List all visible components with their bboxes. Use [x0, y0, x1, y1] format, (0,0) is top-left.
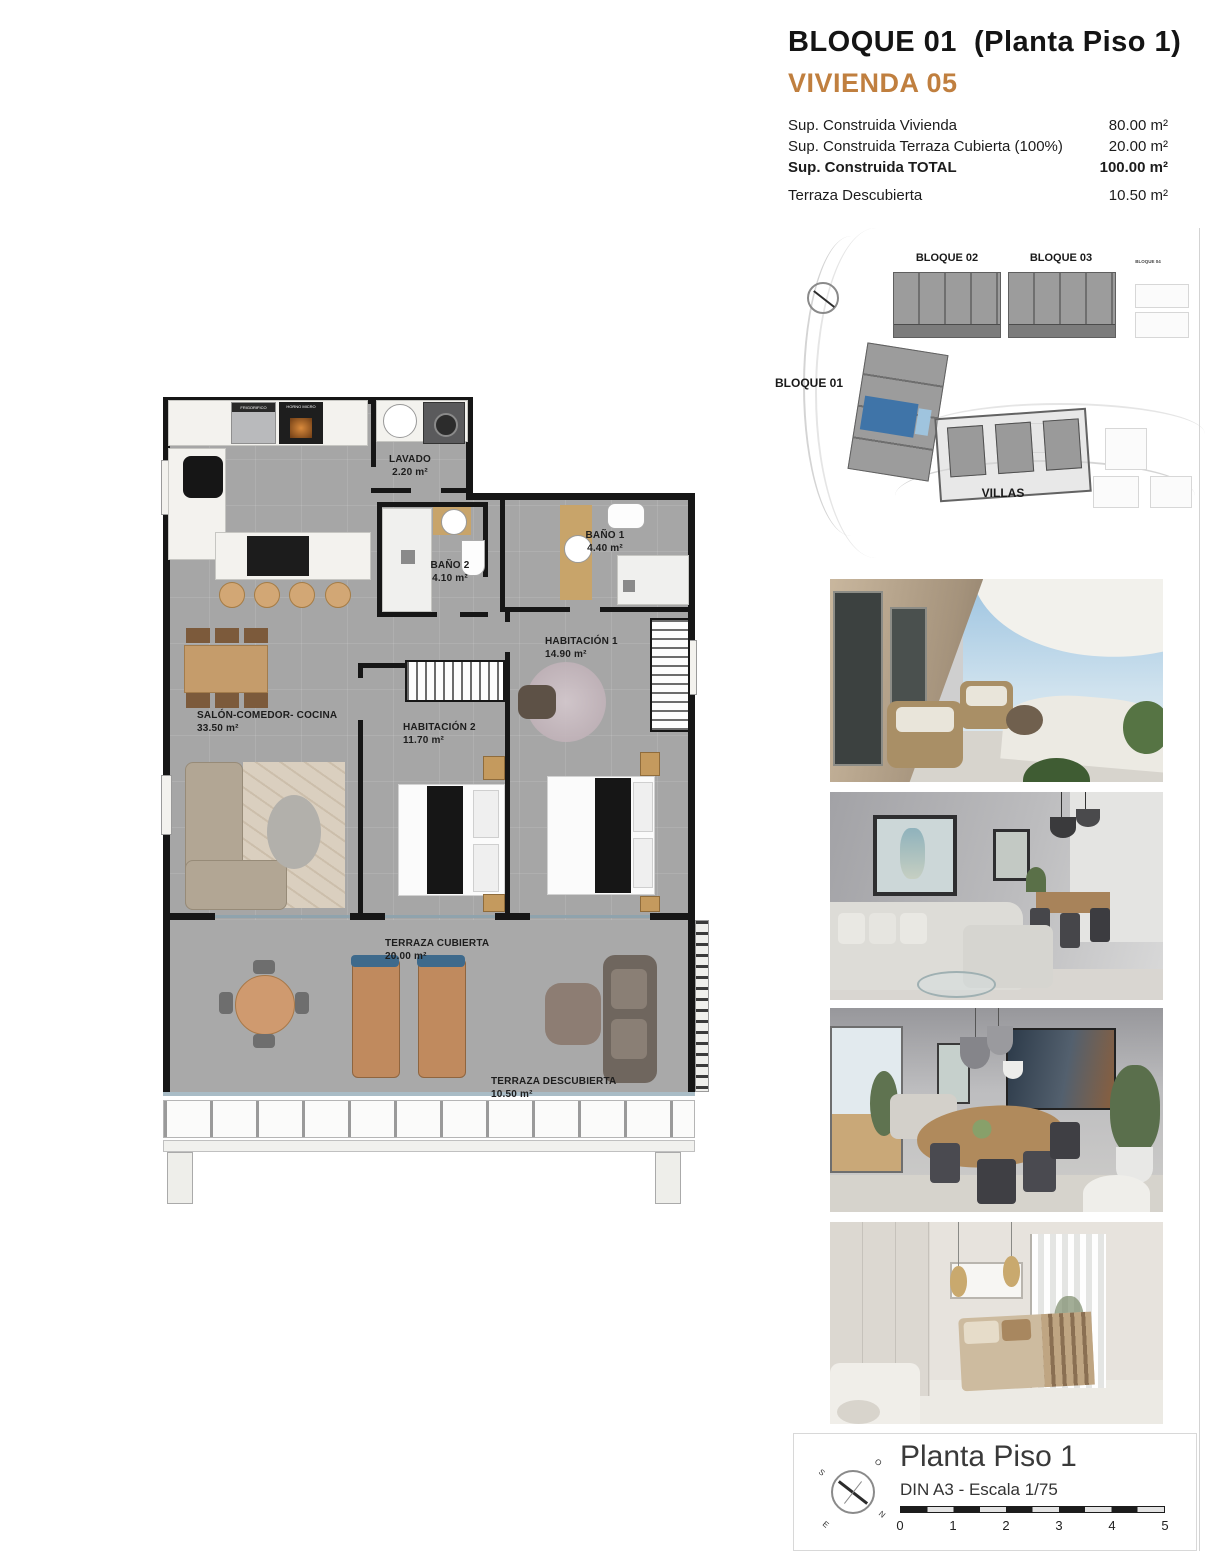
pendant-lamp	[960, 1037, 990, 1070]
cushion	[896, 707, 954, 731]
wall	[358, 663, 363, 678]
fridge-label: FRIGORIFICO	[232, 405, 275, 410]
villa	[995, 422, 1034, 474]
bed-pillow	[633, 782, 653, 832]
area-row: Sup. Construida Terraza Cubierta (100%) …	[788, 136, 1168, 157]
sun-lounger	[352, 958, 400, 1078]
wall	[377, 612, 437, 617]
label-bloque-01: BLOQUE 01	[775, 376, 845, 390]
neighbor-structure	[1093, 476, 1139, 508]
cooktop	[247, 536, 309, 576]
neighbor-structure	[1135, 284, 1189, 308]
villa	[947, 425, 986, 477]
wall	[371, 488, 411, 493]
room-area: 4.40 m²	[550, 543, 660, 556]
bar-stool	[219, 582, 245, 608]
room-label-salon: SALÓN-COMEDOR- COCINA 33.50 m²	[197, 710, 357, 735]
nightstand	[640, 896, 660, 912]
room-area: 10.50 m²	[491, 1089, 651, 1102]
room-label-bano1: BAÑO 1 4.40 m²	[550, 530, 660, 555]
coffee-table	[267, 795, 321, 869]
terrace-chair	[219, 992, 233, 1014]
fridge: FRIGORIFICO	[231, 402, 276, 444]
area-row-total: Sup. Construida TOTAL 100.00 m²	[788, 157, 1168, 178]
bed-blanket	[595, 778, 631, 893]
wall	[466, 493, 695, 500]
building-base	[894, 324, 1000, 337]
bar-stool	[254, 582, 280, 608]
glass-coffee-table	[917, 971, 997, 998]
area-label: Sup. Construida Terraza Cubierta (100%)	[788, 136, 1063, 157]
building-bloque-03	[1008, 272, 1116, 338]
dining-chair	[215, 693, 239, 708]
pendant-cord	[975, 1008, 976, 1041]
sofa-cushion	[838, 913, 865, 944]
room-area: 20.00 m²	[385, 951, 525, 964]
kitchen-sink-black	[183, 456, 223, 498]
header: BLOQUE 01 (Planta Piso 1) VIVIENDA 05 Su…	[788, 26, 1168, 206]
scale-tick: 2	[1000, 1518, 1012, 1533]
label-bloque-04: BLOQUE 04	[1123, 259, 1173, 264]
sink-bano2	[441, 509, 467, 535]
nightstand	[640, 752, 660, 776]
oven-micro: HORNO MICRO	[279, 402, 323, 444]
brochure-page: { "header": { "title": "BLOQUE 01 (Plant…	[0, 0, 1205, 1554]
bed	[958, 1311, 1095, 1391]
room-area: 4.10 m²	[400, 573, 500, 586]
wall	[441, 488, 473, 493]
room-name: TERRAZA DESCUBIERTA	[491, 1076, 651, 1089]
pendant-cord	[1085, 792, 1086, 811]
terrace-chair	[295, 992, 309, 1014]
area-value: 10.50 m²	[1109, 185, 1168, 206]
wall	[460, 612, 488, 617]
pendant-cord	[1061, 792, 1062, 819]
outdoor-pouf	[545, 983, 601, 1045]
area-row: Sup. Construida Vivienda 80.00 m²	[788, 115, 1168, 136]
pendant-cord	[958, 1222, 959, 1268]
bar-stool	[289, 582, 315, 608]
dining-chair	[977, 1159, 1017, 1204]
area-table: Sup. Construida Vivienda 80.00 m² Sup. C…	[788, 115, 1168, 206]
label-villas: VILLAS	[943, 486, 1063, 500]
scale-bar	[900, 1506, 1165, 1513]
tub-chair	[1083, 1175, 1150, 1212]
page-right-rule	[1199, 228, 1200, 1551]
room-name: SALÓN-COMEDOR- COCINA	[197, 710, 357, 723]
column	[655, 1152, 681, 1204]
rattan-lamp	[950, 1266, 967, 1296]
pendant-cord	[1011, 1222, 1012, 1258]
area-value: 20.00 m²	[1109, 136, 1168, 157]
wardrobe-hab2	[405, 660, 505, 702]
compass-needle	[813, 290, 835, 308]
dining-table	[184, 645, 268, 693]
sofa-chaise	[185, 860, 287, 910]
bed-pillow	[633, 838, 653, 888]
oven-label: HORNO MICRO	[279, 404, 323, 409]
sofa-cushion	[869, 913, 896, 944]
plant	[1110, 1065, 1160, 1155]
wall	[600, 607, 695, 612]
room-name: HABITACIÓN 2	[403, 722, 523, 735]
unit-subtitle: VIVIENDA 05	[788, 68, 1168, 99]
photo-living-room	[830, 792, 1163, 1000]
villa	[1043, 418, 1082, 470]
side-table	[837, 1400, 880, 1424]
neighbor-structure	[1135, 312, 1189, 338]
bed-pillow	[1001, 1319, 1031, 1341]
label-bloque-02: BLOQUE 02	[891, 252, 1003, 264]
wall	[358, 720, 363, 920]
room-label-lavado: LAVADO 2.20 m²	[360, 454, 460, 479]
site-plan: BLOQUE 02 BLOQUE 03 BLOQUE 04 BLOQUE 01 …	[775, 228, 1205, 520]
room-label-hab1: HABITACIÓN 1 14.90 m²	[545, 636, 675, 661]
area-value: 80.00 m²	[1109, 115, 1168, 136]
pendant-lamp	[1076, 809, 1099, 828]
room-name: BAÑO 1	[550, 530, 660, 543]
dining-chair	[244, 628, 268, 643]
photo-terrace	[830, 579, 1163, 782]
room-area: 33.50 m²	[197, 723, 357, 736]
photo-bedroom	[830, 1222, 1163, 1424]
site-compass-icon	[807, 282, 839, 314]
label-bloque-03: BLOQUE 03	[1005, 252, 1117, 264]
nightstand	[483, 894, 505, 912]
wall	[495, 913, 530, 920]
room-area: 2.20 m²	[360, 467, 460, 480]
plant	[1026, 867, 1046, 892]
wall	[500, 500, 505, 612]
terrace-glass-doors	[170, 915, 688, 918]
scale-tick: 1	[947, 1518, 959, 1533]
dining-chair	[1050, 1122, 1080, 1159]
terrace-chair	[253, 1034, 275, 1048]
laundry-sink	[383, 404, 417, 438]
scale-note: DIN A3 - Escala 1/75	[900, 1480, 1058, 1500]
page-title: BLOQUE 01 (Planta Piso 1)	[788, 26, 1168, 59]
room-name: LAVADO	[360, 454, 460, 467]
washing-machine	[423, 402, 465, 444]
photo-dining-area	[830, 1008, 1163, 1212]
nightstand	[483, 756, 505, 780]
room-label-hab2: HABITACIÓN 2 11.70 m²	[403, 722, 523, 747]
sun-lounger	[418, 958, 466, 1078]
shower-head	[623, 580, 635, 592]
window	[161, 775, 172, 835]
room-area: 11.70 m²	[403, 735, 523, 748]
area-row: Terraza Descubierta 10.50 m²	[788, 185, 1168, 206]
sofa-cushion	[611, 1019, 647, 1059]
floor-plan: FRIGORIFICO HORNO MICRO	[155, 390, 715, 1215]
scale-tick: 0	[894, 1518, 906, 1533]
dining-chair	[1090, 908, 1110, 941]
bed-pillow	[473, 844, 499, 892]
room-name: TERRAZA CUBIERTA	[385, 938, 525, 951]
wall	[505, 652, 510, 920]
terrace-table	[235, 975, 295, 1035]
washer-drum	[434, 413, 458, 437]
bed-pillow	[964, 1321, 1000, 1345]
neighbor-railing	[695, 920, 709, 1092]
pendant-lamp	[987, 1026, 1014, 1055]
neighbor-structure	[1150, 476, 1192, 508]
wall	[358, 663, 408, 668]
pergola-strip	[163, 1100, 695, 1138]
plant	[1123, 701, 1163, 754]
compass-cross	[844, 1481, 862, 1504]
toilet-bano1	[607, 503, 645, 529]
cushion	[966, 686, 1006, 705]
wall	[500, 607, 570, 612]
dining-chair	[186, 628, 210, 643]
scale-tick: 5	[1159, 1518, 1171, 1533]
glass-door	[833, 591, 883, 766]
room-label-bano2: BAÑO 2 4.10 m²	[400, 560, 500, 585]
wall	[688, 920, 695, 1092]
area-label: Sup. Construida TOTAL	[788, 157, 957, 178]
neighbor-structure	[1105, 428, 1147, 470]
dining-chair	[930, 1143, 960, 1184]
wicker-armchair	[887, 701, 964, 768]
rattan-lamp	[1003, 1256, 1020, 1286]
building-bloque-02	[893, 272, 1001, 338]
pergola-band	[163, 1140, 695, 1152]
art-smudge	[900, 828, 926, 879]
dining-chair	[186, 693, 210, 708]
room-name: BAÑO 2	[400, 560, 500, 573]
area-value: 100.00 m²	[1100, 157, 1168, 178]
sofa-cushion	[900, 913, 927, 944]
room-label-terraza-cubierta: TERRAZA CUBIERTA 20.00 m²	[385, 938, 525, 963]
bed-blanket	[427, 786, 463, 894]
wall	[505, 612, 510, 622]
room-area: 14.90 m²	[545, 649, 675, 662]
footer-compass-icon	[831, 1470, 875, 1514]
bar-stool	[325, 582, 351, 608]
building-base	[1009, 324, 1115, 337]
pendant-lamp	[1050, 817, 1077, 838]
footer: O S N E Planta Piso 1 DIN A3 - Escala 1/…	[775, 1430, 1205, 1554]
wall	[163, 920, 170, 1092]
terrace-chair	[253, 960, 275, 974]
wicker-armchair	[960, 681, 1013, 730]
outdoor-sofa	[603, 955, 657, 1083]
area-label: Sup. Construida Vivienda	[788, 115, 957, 136]
dining-chair	[244, 693, 268, 708]
wall	[350, 913, 385, 920]
column	[167, 1152, 193, 1204]
sofa-cushion	[611, 969, 647, 1009]
area-label: Terraza Descubierta	[788, 185, 922, 206]
room-label-terraza-descubierta: TERRAZA DESCUBIERTA 10.50 m²	[491, 1076, 651, 1101]
footer-title: Planta Piso 1	[900, 1440, 1077, 1474]
scale-tick: 3	[1053, 1518, 1065, 1533]
room-name: HABITACIÓN 1	[545, 636, 675, 649]
centerpiece	[971, 1119, 991, 1139]
wall	[163, 913, 215, 920]
wall-art-small	[993, 829, 1030, 881]
oven-glow	[290, 418, 312, 438]
wall-art	[873, 815, 956, 896]
dining-chair	[215, 628, 239, 643]
armchair	[518, 685, 556, 719]
striped-throw	[1040, 1311, 1094, 1386]
bed-pillow	[473, 790, 499, 838]
scale-tick: 4	[1106, 1518, 1118, 1533]
dining-chair	[1060, 913, 1080, 948]
wall	[650, 913, 695, 920]
